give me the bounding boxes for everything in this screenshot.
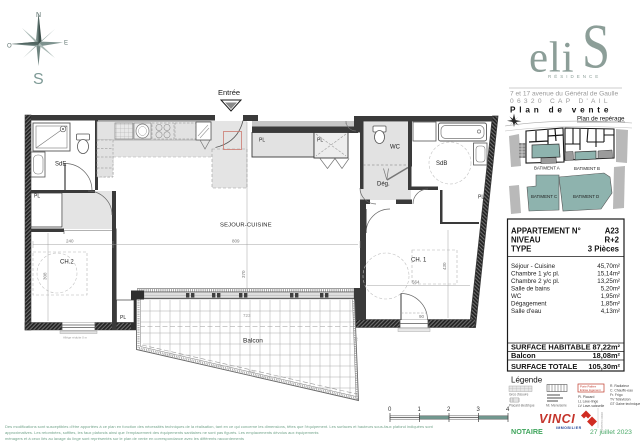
svg-text:1,95m²: 1,95m² — [601, 293, 620, 300]
svg-text:18,08m²: 18,08m² — [592, 351, 620, 360]
svg-text:SURFACE TOTALE: SURFACE TOTALE — [511, 362, 577, 371]
svg-text:06320 CAP D'AIL: 06320 CAP D'AIL — [510, 98, 611, 105]
svg-text:BATIMENT C: BATIMENT C — [531, 194, 557, 199]
svg-text:TV Télévision: TV Télévision — [610, 398, 631, 402]
svg-text:CH. 1: CH. 1 — [411, 258, 427, 264]
svg-text:IMMOBILIER: IMMOBILIER — [556, 426, 582, 430]
svg-text:Dég.: Dég. — [377, 182, 390, 188]
svg-text:Pl. Placard: Pl. Placard — [578, 395, 595, 399]
svg-text:GT Gaine technique: GT Gaine technique — [610, 402, 640, 406]
svg-text:Chambre 2 y/c pl.: Chambre 2 y/c pl. — [511, 278, 560, 285]
svg-text:Fr. Frigo: Fr. Frigo — [610, 393, 623, 397]
svg-text:BATIMENT B: BATIMENT B — [574, 166, 600, 171]
svg-text:Ml. Menuiserie: Ml. Menuiserie — [546, 404, 567, 408]
svg-text:1,85m²: 1,85m² — [601, 301, 620, 308]
svg-text:Gros d'œuvre: Gros d'œuvre — [509, 393, 529, 397]
svg-text:5,20m²: 5,20m² — [601, 286, 620, 293]
svg-text:BATIMENT D: BATIMENT D — [573, 194, 599, 199]
svg-text:RÉSIDENCE: RÉSIDENCE — [548, 73, 601, 79]
svg-text:SdB: SdB — [436, 161, 447, 167]
svg-text:LV Lave-vaisselle: LV Lave-vaisselle — [578, 404, 604, 408]
svg-text:R. Radiateur: R. Radiateur — [610, 384, 630, 388]
svg-text:Chambre 1 y/c pl.: Chambre 1 y/c pl. — [511, 271, 560, 278]
svg-text:105,30m²: 105,30m² — [588, 362, 620, 371]
svg-text:308: 308 — [43, 272, 48, 280]
svg-text:564: 564 — [412, 280, 420, 285]
svg-text:Balcon: Balcon — [243, 338, 263, 345]
svg-text:27 juillet 2023: 27 juillet 2023 — [590, 429, 632, 436]
svg-text:45,70m²: 45,70m² — [597, 263, 620, 270]
svg-text:723: 723 — [243, 313, 251, 318]
svg-text:PL: PL — [317, 138, 323, 144]
svg-text:WC: WC — [390, 145, 401, 151]
svg-text:Entrée: Entrée — [218, 88, 240, 97]
svg-text:Séjour - Cuisine: Séjour - Cuisine — [511, 263, 556, 270]
svg-text:PL: PL — [34, 194, 40, 200]
svg-text:Salle d'eau: Salle d'eau — [511, 308, 542, 315]
svg-text:15,14m²: 15,14m² — [597, 271, 620, 278]
svg-text:E: E — [64, 41, 68, 47]
svg-text:ménagers et à ceux liés au lav: ménagers et à ceux liés au lavage du lin… — [5, 436, 244, 441]
svg-text:WC: WC — [511, 293, 522, 300]
svg-text:Des modifications sont suscept: Des modifications sont susceptibles d'êt… — [5, 424, 434, 429]
svg-text:7 et 17 avenue du Général de G: 7 et 17 avenue du Général de Gaulle — [510, 91, 618, 98]
svg-text:A23: A23 — [605, 227, 620, 236]
svg-text:SEJOUR-CUISINE: SEJOUR-CUISINE — [220, 223, 272, 229]
svg-text:approximatives. Les retombées,: approximatives. Les retombées, soffites,… — [5, 430, 319, 435]
svg-text:Salle de bains: Salle de bains — [511, 286, 550, 293]
svg-text:4,13m²: 4,13m² — [601, 308, 620, 315]
svg-text:Allège réduite 0 m: Allège réduite 0 m — [63, 336, 88, 340]
svg-text:S: S — [33, 71, 44, 88]
svg-text:PL: PL — [259, 138, 265, 144]
svg-text:S: S — [582, 12, 610, 82]
svg-text:TYPE: TYPE — [511, 245, 531, 254]
svg-text:PL: PL — [120, 315, 126, 321]
svg-text:Dégagement: Dégagement — [511, 301, 547, 308]
svg-text:APPARTEMENT N°: APPARTEMENT N° — [511, 227, 581, 236]
svg-text:90: 90 — [419, 314, 425, 319]
svg-text:Placard électrique: Placard électrique — [509, 404, 535, 408]
svg-text:809: 809 — [232, 239, 240, 244]
svg-text:BATIMENT A: BATIMENT A — [534, 166, 560, 171]
svg-text:240: 240 — [66, 239, 74, 244]
svg-text:3 Pièces: 3 Pièces — [588, 245, 620, 254]
svg-text:LL Lave-linge: LL Lave-linge — [578, 400, 598, 404]
svg-text:O: O — [7, 44, 12, 50]
svg-text:NIVEAU: NIVEAU — [511, 236, 541, 245]
svg-text:R+2: R+2 — [604, 236, 619, 245]
svg-text:Entrée logement: Entrée logement — [580, 388, 601, 392]
svg-text:370: 370 — [241, 270, 246, 278]
svg-text:VINCI: VINCI — [539, 412, 575, 426]
svg-text:PL: PL — [478, 195, 484, 201]
svg-text:NOTAIRE: NOTAIRE — [511, 427, 543, 436]
svg-text:Balcon: Balcon — [511, 351, 536, 360]
svg-text:N: N — [36, 12, 41, 19]
svg-text:Légende: Légende — [511, 376, 543, 385]
svg-text:430: 430 — [442, 262, 447, 270]
svg-text:Plan de vente: Plan de vente — [510, 106, 612, 115]
svg-text:13,25m²: 13,25m² — [597, 278, 620, 285]
svg-text:C. Chauffe-eau: C. Chauffe-eau — [610, 389, 633, 393]
svg-text:90: 90 — [355, 337, 359, 341]
